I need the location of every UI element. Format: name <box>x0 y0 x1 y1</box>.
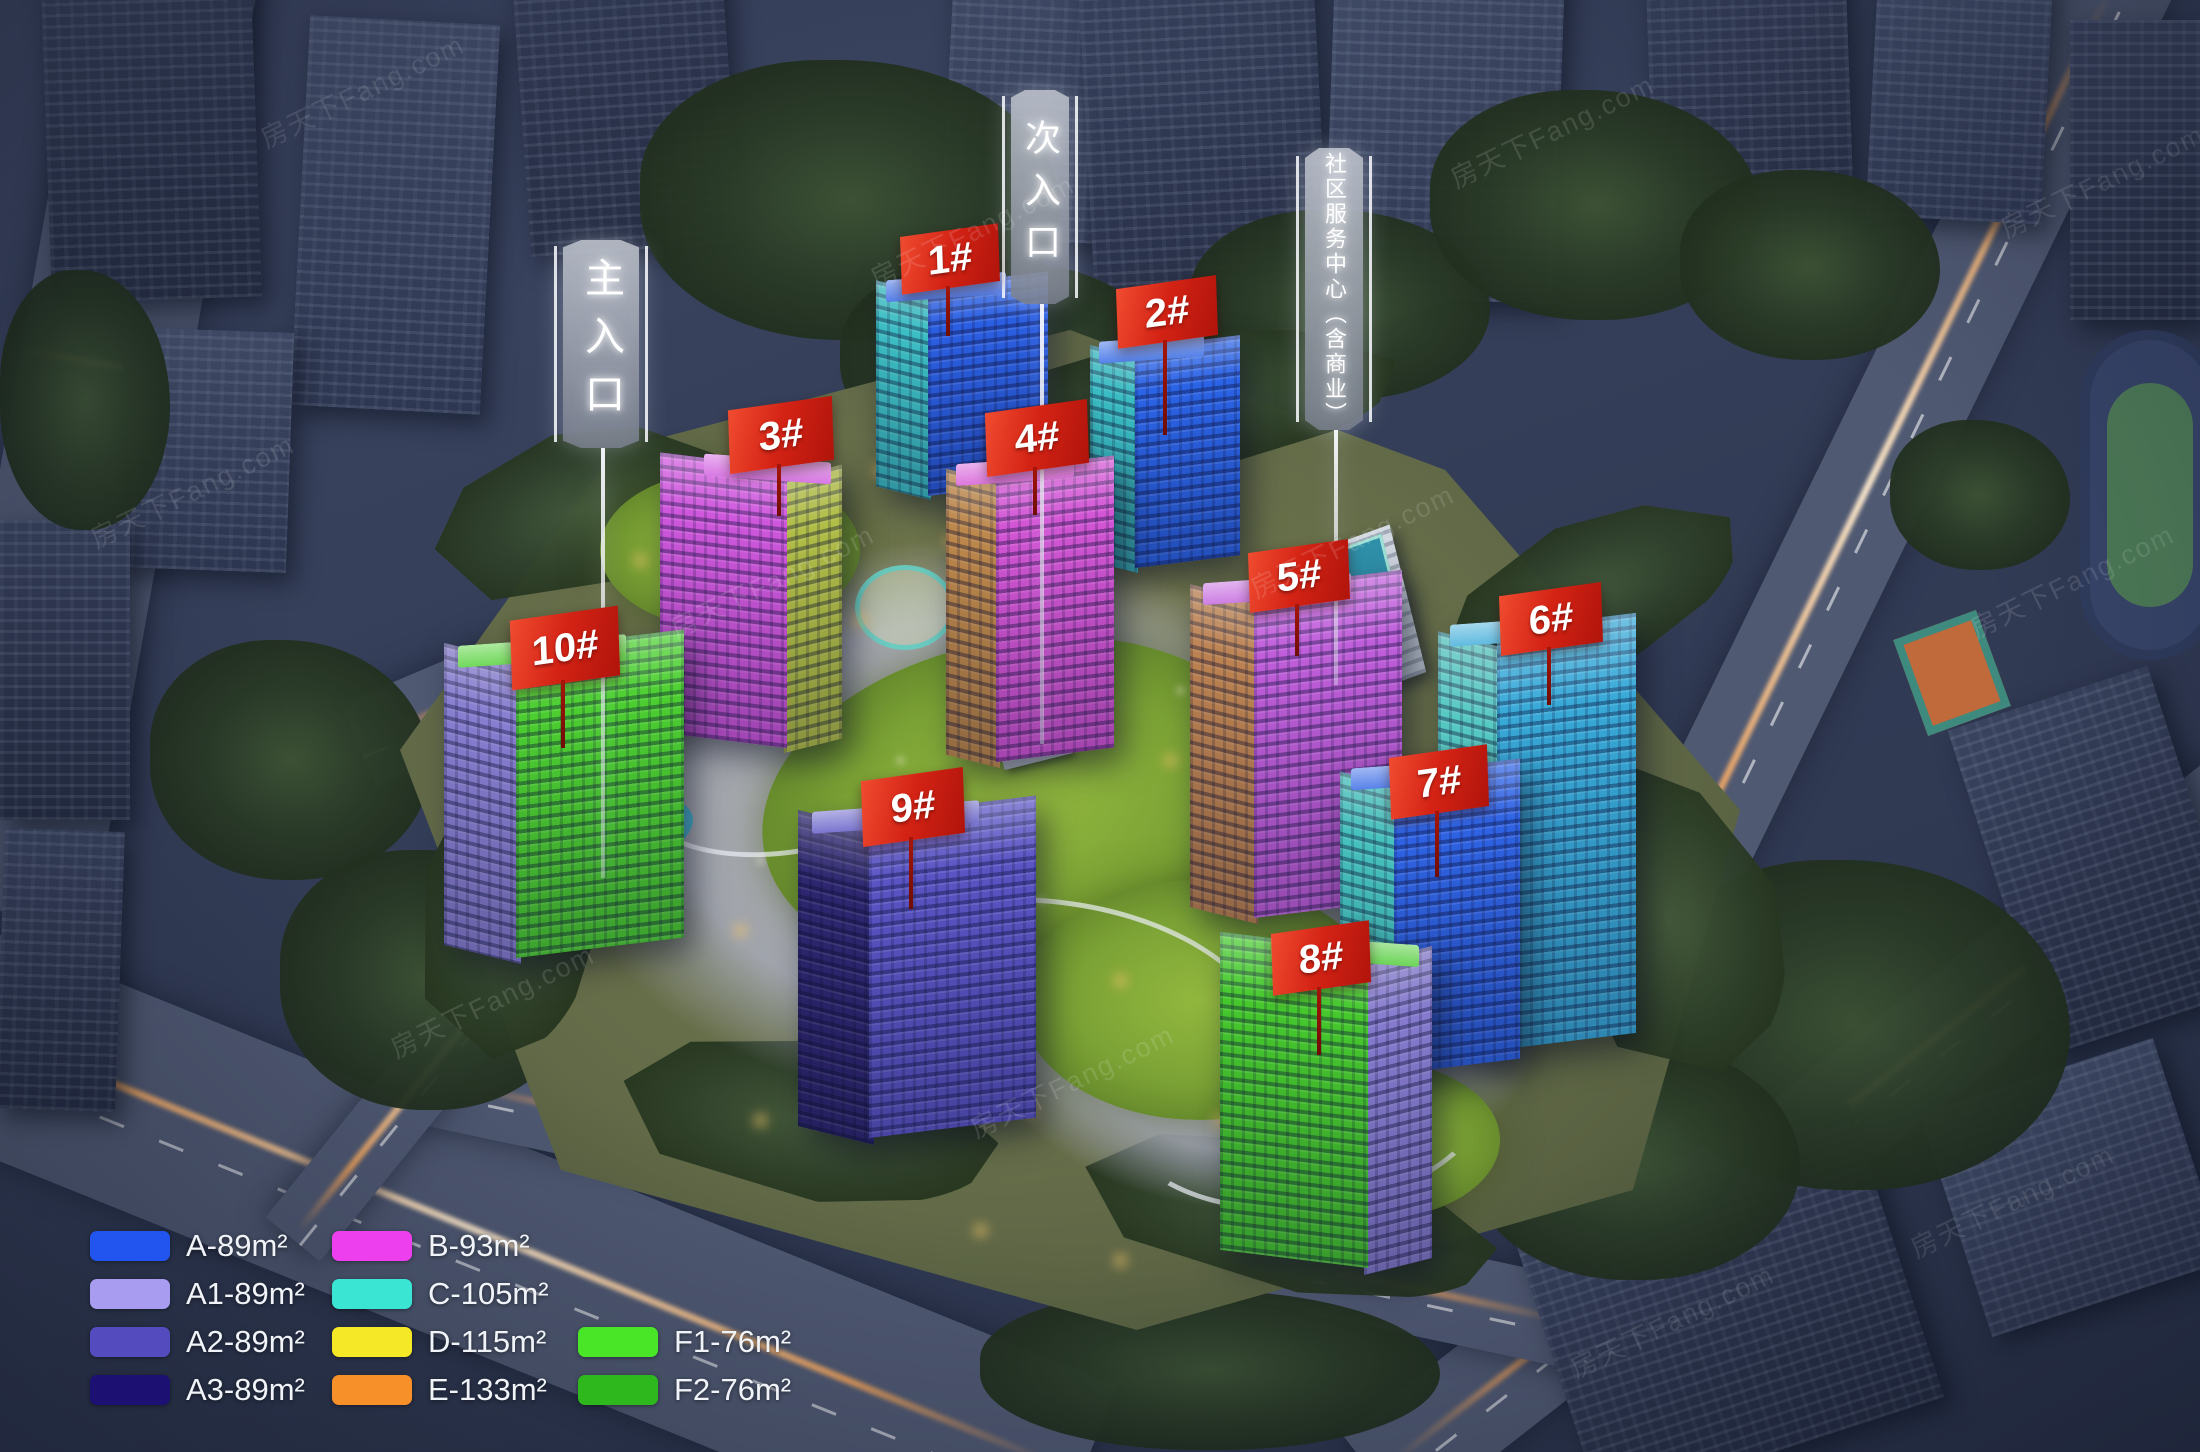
legend-label: A1-89m² <box>186 1276 305 1312</box>
flag-cloth: 9# <box>861 767 965 847</box>
legend: A-89m² B-93m² A1-89m² C-105m² A2-89m² D-… <box>90 1222 878 1414</box>
legend-label: E-133m² <box>428 1372 547 1408</box>
legend-swatch <box>332 1279 412 1309</box>
legend-swatch <box>578 1327 658 1357</box>
building-face <box>946 468 1000 768</box>
building-4 <box>946 470 1114 762</box>
legend-label: A-89m² <box>186 1228 288 1264</box>
flag-cloth: 7# <box>1389 744 1489 819</box>
banner-rail <box>645 246 648 442</box>
flag-cloth: 8# <box>1271 920 1371 995</box>
banner-pole <box>1040 304 1044 744</box>
building-flag-6: 6# <box>1500 589 1602 649</box>
building-face <box>1364 946 1432 1275</box>
tree-cluster <box>1890 420 2070 570</box>
legend-item-a89: A-89m² <box>90 1222 332 1270</box>
legend-swatch <box>90 1327 170 1357</box>
path-lights <box>0 0 1 1</box>
building-label: 2# <box>1144 286 1190 337</box>
legend-item-e133: E-133m² <box>332 1366 578 1414</box>
building-face <box>1190 584 1258 924</box>
building-flag-2: 2# <box>1117 282 1217 342</box>
city-building <box>0 520 130 820</box>
flag-pole <box>1317 987 1321 1055</box>
legend-swatch <box>578 1375 658 1405</box>
legend-label: D-115m² <box>428 1324 546 1360</box>
legend-swatch <box>90 1375 170 1405</box>
legend-label: F2-76m² <box>674 1372 791 1408</box>
banner-rail <box>554 246 557 442</box>
flag-cloth: 6# <box>1499 582 1603 656</box>
running-track <box>2080 330 2200 660</box>
legend-label: B-93m² <box>428 1228 530 1264</box>
legend-item-f1-76: F1-76m² <box>578 1318 878 1366</box>
legend-label: A3-89m² <box>186 1372 305 1408</box>
building-9 <box>798 816 1036 1138</box>
banner-label: 主入口 <box>572 257 630 431</box>
banner-label: 社区服务中心（含商业） <box>1318 152 1350 427</box>
legend-item-b93: B-93m² <box>332 1222 578 1270</box>
legend-item-f2-76: F2-76m² <box>578 1366 878 1414</box>
flag-cloth: 3# <box>728 396 834 474</box>
building-flag-10: 10# <box>511 613 619 683</box>
banner-board: 主入口 <box>563 240 639 448</box>
building-flag-3: 3# <box>729 403 833 467</box>
flag-pole <box>909 837 913 909</box>
building-flag-9: 9# <box>862 774 964 840</box>
flag-cloth: 2# <box>1116 275 1218 349</box>
banner-rail <box>1369 156 1372 421</box>
building-face <box>784 465 842 754</box>
building-label: 10# <box>531 621 599 675</box>
banner-rail <box>1296 156 1299 421</box>
flag-pole <box>1295 604 1299 656</box>
legend-swatch <box>332 1231 412 1261</box>
building-flag-7: 7# <box>1390 751 1488 813</box>
building-face <box>876 281 931 501</box>
main-entrance-banner: 主入口 <box>563 240 639 448</box>
building-label: 9# <box>890 781 936 832</box>
legend-item-a2-89: A2-89m² <box>90 1318 332 1366</box>
legend-item-a3-89: A3-89m² <box>90 1366 332 1414</box>
building-face <box>798 810 874 1145</box>
flag-pole <box>1033 467 1037 515</box>
legend-swatch <box>90 1279 170 1309</box>
flag-cloth: 4# <box>985 399 1089 477</box>
community-center-banner: 社区服务中心（含商业） <box>1305 148 1363 430</box>
building-label: 6# <box>1528 593 1574 644</box>
building-face <box>996 456 1114 762</box>
legend-label: C-105m² <box>428 1276 549 1312</box>
building-flag-8: 8# <box>1272 927 1370 989</box>
building-face <box>1135 335 1240 568</box>
building-label: 7# <box>1416 756 1462 807</box>
flag-pole <box>1435 811 1439 877</box>
legend-item-d115: D-115m² <box>332 1318 578 1366</box>
flag-pole <box>1547 647 1551 705</box>
legend-label: F1-76m² <box>674 1324 791 1360</box>
legend-item-c105: C-105m² <box>332 1270 578 1318</box>
building-label: 3# <box>758 409 804 460</box>
legend-label: A2-89m² <box>186 1324 305 1360</box>
legend-swatch <box>332 1327 412 1357</box>
banner-board: 社区服务中心（含商业） <box>1305 148 1363 430</box>
city-building <box>40 0 262 304</box>
building-flag-4: 4# <box>986 406 1088 470</box>
flag-pole <box>946 286 950 336</box>
legend-swatch <box>332 1375 412 1405</box>
building-8 <box>1220 950 1432 1268</box>
site-plan-render: 1# 2# 3# 4# 5# 6# 7# 8# 9# 10# 主入口 <box>0 0 2200 1452</box>
city-building <box>0 828 125 1112</box>
flag-pole <box>777 464 781 516</box>
tree-cluster <box>150 640 430 880</box>
legend-swatch <box>90 1231 170 1261</box>
building-label: 8# <box>1298 932 1344 983</box>
city-building <box>1866 0 2054 224</box>
flag-pole <box>1163 340 1167 435</box>
building-label: 4# <box>1014 412 1060 463</box>
building-face <box>444 643 521 964</box>
flag-cloth: 10# <box>510 606 620 691</box>
flag-pole <box>561 680 565 748</box>
legend-item-a1-89: A1-89m² <box>90 1270 332 1318</box>
